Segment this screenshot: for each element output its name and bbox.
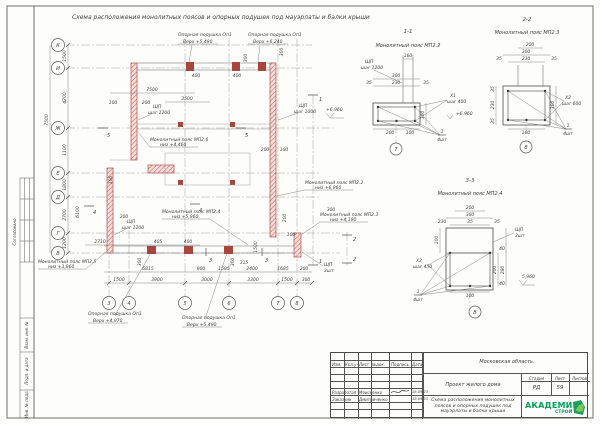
project-text: Проект жилого дома — [424, 382, 522, 388]
rebar-label: Х2 — [415, 258, 422, 264]
wall-hatched — [131, 63, 137, 160]
dim: 100 — [287, 232, 296, 238]
stamp-side-label: Согласовано — [12, 218, 17, 245]
dim: 230 — [438, 219, 447, 225]
dim: 3900 — [151, 277, 163, 283]
stage-table: Стадия Лист Листов РД 59 — [521, 373, 589, 395]
dim: 35 — [366, 80, 372, 86]
leader-text: Опорная подушка Оп1 — [178, 32, 232, 38]
dim: 35 — [496, 56, 502, 62]
leader-text: Верх +5,490 — [187, 322, 217, 328]
section-3-3: 3-3 Монолитный пояс МП2.4 200 300 230 35… — [413, 178, 535, 318]
leader-text: Опорная подушка Оп1 — [182, 315, 236, 321]
position-number: 1 — [567, 123, 570, 129]
dim: 100 — [434, 236, 440, 245]
dim: 1800 — [62, 179, 68, 191]
leader-text: низ +4,190 — [330, 217, 356, 223]
support-pad — [186, 62, 194, 71]
section-title: 3-3 — [466, 178, 475, 184]
dim: 3300 — [247, 277, 259, 283]
sheet-number: 59 — [551, 385, 569, 391]
section-2-2: 2-2 Монолитный пояс МП2.3 200 300 35 230… — [490, 17, 581, 153]
support-pad — [258, 62, 266, 71]
cut-label: 1 — [319, 97, 322, 103]
leader-text: Опорная подушка Оп1 — [248, 32, 302, 38]
support-pad — [147, 246, 156, 254]
leader-text: Верх +5,490 — [183, 39, 213, 45]
section-1-1: 1-1 Монолитный пояс МП2.2 160 300 35 230… — [361, 29, 473, 155]
dim: 230 — [392, 80, 401, 86]
dim: 2700 — [62, 209, 68, 221]
logo-subname: СТРОЙ — [555, 410, 572, 415]
support-pad — [184, 246, 193, 254]
plan-leaders: Опорная подушка Оп1 Верх +5,490 Опорная … — [38, 32, 378, 328]
dim: 160 — [404, 53, 413, 59]
dim: 6815 — [142, 266, 154, 272]
dim: 300 — [466, 212, 475, 218]
header-col: Кол.уч. — [345, 362, 360, 367]
note-text: шаг 1200 — [122, 225, 144, 231]
header-col: Подпись — [391, 362, 409, 367]
cut-label: 4 — [93, 210, 96, 216]
note-text: ЩП — [365, 59, 374, 65]
stamp-side-label: Взам. инв. № — [24, 321, 29, 348]
dim: 100 — [406, 130, 415, 136]
dim: 315 — [240, 260, 249, 266]
cut-label: 5 — [107, 133, 110, 139]
rebar-label: шаг 400 — [447, 99, 466, 105]
sig-name: Моисеенко — [359, 390, 382, 395]
dim: 300 — [522, 49, 531, 55]
axis-label: 8 — [295, 301, 298, 307]
cut-label: 3 — [265, 258, 268, 264]
support-pad — [148, 165, 174, 173]
support-pad — [178, 122, 183, 127]
dim: 300 — [243, 54, 249, 63]
axis-label: 5 — [183, 301, 186, 307]
header-col: №док. — [372, 362, 385, 367]
rebar-label: шаг 450 — [413, 264, 432, 270]
dim: 300 — [230, 258, 236, 267]
dim: 200 — [261, 147, 270, 153]
plan: К И Ж Е Д Г В 3 4 5 6 7 8 — [38, 32, 378, 328]
dim: 400 — [192, 73, 201, 79]
dim: 6100 — [75, 206, 81, 218]
support-pad — [232, 62, 240, 71]
position-number: 1 — [441, 129, 444, 135]
dim: 400 — [233, 73, 242, 79]
dim: 7500 — [146, 87, 158, 93]
support-pad — [230, 180, 235, 185]
dim: 1200 — [62, 237, 68, 249]
note-text: 3шт — [324, 268, 334, 274]
doc-name-cell: Схема расположения монолитных поясов и о… — [423, 395, 521, 418]
sig-role: Разработал — [332, 390, 356, 395]
dim: 230 — [490, 101, 496, 110]
header-col: Изм. — [332, 362, 341, 367]
note-text: 3шт — [515, 233, 525, 239]
section-subtitle: Монолитный пояс МП2.3 — [495, 30, 560, 36]
leader-text: низ +5,960 — [172, 214, 198, 220]
dim: 1500 — [62, 50, 68, 62]
project-cell: Проект жилого дома — [423, 373, 521, 395]
leader-text: низ +3,960 — [48, 264, 74, 270]
note-text: ЩП — [153, 104, 162, 110]
axis-label: К — [56, 43, 60, 49]
page-title: Схема расположения монолитных поясов и о… — [72, 14, 370, 21]
sig-role: Заказчик — [332, 397, 351, 402]
section-subtitle: Монолитный пояс МП2.2 — [376, 43, 441, 49]
cut-label: 2 — [353, 237, 356, 243]
elevation-value: +6,960 — [326, 107, 343, 113]
doc-name-text: Схема расположения монолитных поясов и о… — [427, 398, 519, 415]
note-text: шаг 1000 — [294, 109, 316, 115]
cut-label: 3 — [209, 258, 212, 264]
region-text: Московская область. — [424, 359, 590, 365]
section-title: 2-2 — [523, 17, 532, 23]
note-text: шаг 1200 — [361, 65, 383, 71]
dim: 1500 — [253, 241, 259, 253]
stage-value: РД — [522, 385, 551, 391]
dim: 2400 — [246, 266, 258, 272]
dim: 35 — [490, 86, 496, 92]
dim: 35 — [423, 80, 429, 86]
elevation-value: 5,960 — [522, 274, 535, 280]
dim: 40 — [499, 281, 505, 287]
axis-label: В — [473, 310, 477, 316]
position-count: 4шт — [437, 137, 447, 143]
rebar-label: шаг 600 — [562, 101, 581, 107]
header-col: Лист — [359, 362, 369, 367]
stamp-side-label: Подп. и дата — [24, 357, 29, 385]
drawing-sheet: Согласовано Взам. инв. № Подп. и дата Ин… — [0, 0, 600, 424]
dim: 1685 — [277, 266, 289, 272]
dim: 400 — [184, 239, 193, 245]
col-axis-bubbles: 3 4 5 6 7 8 — [103, 297, 304, 310]
dim: 280 — [500, 266, 506, 275]
stamp-side-label: Инв. № подл. — [24, 390, 29, 418]
cut-label: 2 — [353, 257, 356, 263]
leader-text: Верх +6,240 — [253, 39, 283, 45]
dim: 40 — [499, 246, 505, 252]
dim: 900 — [197, 266, 206, 272]
dim: 35 — [551, 56, 557, 62]
dim: 405 — [154, 239, 163, 245]
support-pad — [224, 246, 233, 254]
region-cell: Московская область. — [423, 353, 589, 373]
dim: 200 — [492, 266, 498, 275]
dim: 4200 — [62, 92, 68, 104]
position-count: 4шт — [563, 131, 573, 137]
elevation-mark: +6,960 — [326, 107, 344, 118]
dim: 100 — [280, 147, 289, 153]
axis-label: 8 — [524, 145, 527, 151]
plan-grid — [66, 38, 347, 296]
leader-text: низ +6,960 — [315, 185, 341, 191]
dim: 2710 — [94, 239, 106, 245]
dim: 200 — [300, 266, 309, 272]
dim: 300 — [279, 48, 285, 57]
position-count: 4шт — [413, 297, 423, 303]
position-number: 1 — [417, 289, 420, 295]
dim: 1500 — [113, 277, 125, 283]
note-text: ЩП — [299, 103, 308, 109]
section-subtitle: Монолитный пояс МП2.4 — [438, 191, 503, 197]
dim: 300 — [137, 258, 143, 267]
axis-label: Ж — [54, 126, 61, 132]
cut-label: 5 — [245, 133, 248, 139]
dim: 1100 — [62, 144, 68, 156]
dim: 200 — [142, 100, 151, 106]
dim: 35 — [494, 219, 500, 225]
sig-name: Дмитриченко — [359, 397, 388, 402]
note-text: ЩП — [127, 219, 136, 225]
dim: 3500 — [181, 96, 193, 102]
leader-text: Верх +4,970 — [93, 318, 123, 324]
dim: 3000 — [201, 277, 213, 283]
header-col: Дата — [412, 362, 422, 367]
dim: 100 — [108, 176, 114, 185]
axis-label: Д — [55, 195, 60, 201]
logo-cell: АКАДЕМИК СТРОЙ — [521, 395, 589, 418]
stage-label: Стадия — [522, 376, 551, 381]
logo-icon — [571, 399, 587, 416]
elevation-value: +6,960 — [456, 111, 473, 117]
axis-label: 6 — [227, 301, 230, 307]
dim: 300 — [392, 73, 401, 79]
axis-label: 4 — [127, 301, 130, 307]
wall-hatched — [270, 63, 276, 237]
axis-label: 3 — [107, 301, 110, 307]
dim: 7500 — [44, 114, 50, 126]
signature-scribble — [390, 388, 410, 396]
dim: 300 — [302, 277, 311, 283]
dim: 200 — [386, 130, 395, 136]
leader-text: низ +4,460 — [160, 142, 186, 148]
axis-label: В — [56, 251, 60, 257]
note-text: ЩП — [515, 227, 524, 233]
section-cut-marks: 5 5 4 4 1 1 2 2 3 3 — [84, 95, 356, 265]
axis-label: И — [56, 66, 60, 72]
dim: 100 — [109, 100, 118, 106]
support-pad — [230, 122, 235, 127]
rebar-label: Х2 — [564, 95, 571, 101]
sheets-label: Листов — [569, 376, 590, 381]
dim: 35 — [467, 219, 473, 225]
note-text: шаг 1200 — [148, 110, 170, 116]
cut-label: 1 — [319, 259, 322, 265]
sheet-label: Лист — [551, 376, 569, 381]
rebar-label: Х1 — [449, 93, 456, 99]
dim: 200 — [282, 214, 288, 223]
leader-text: Опорная подушка Оп1 — [88, 311, 142, 317]
section-title: 1-1 — [404, 29, 413, 35]
dim: 200 — [466, 205, 475, 211]
dim: 230 — [522, 56, 531, 62]
note-text: ЩП — [324, 262, 333, 268]
support-pad — [178, 180, 183, 185]
dim: 200 — [526, 42, 535, 48]
dim: 1500 — [281, 277, 293, 283]
roof-opening — [165, 153, 250, 185]
dim: 1685 — [218, 266, 230, 272]
dim: 35 — [490, 118, 496, 124]
title-block: Изм. Кол.уч. Лист №док. Подпись Дата Раз… — [330, 352, 588, 418]
